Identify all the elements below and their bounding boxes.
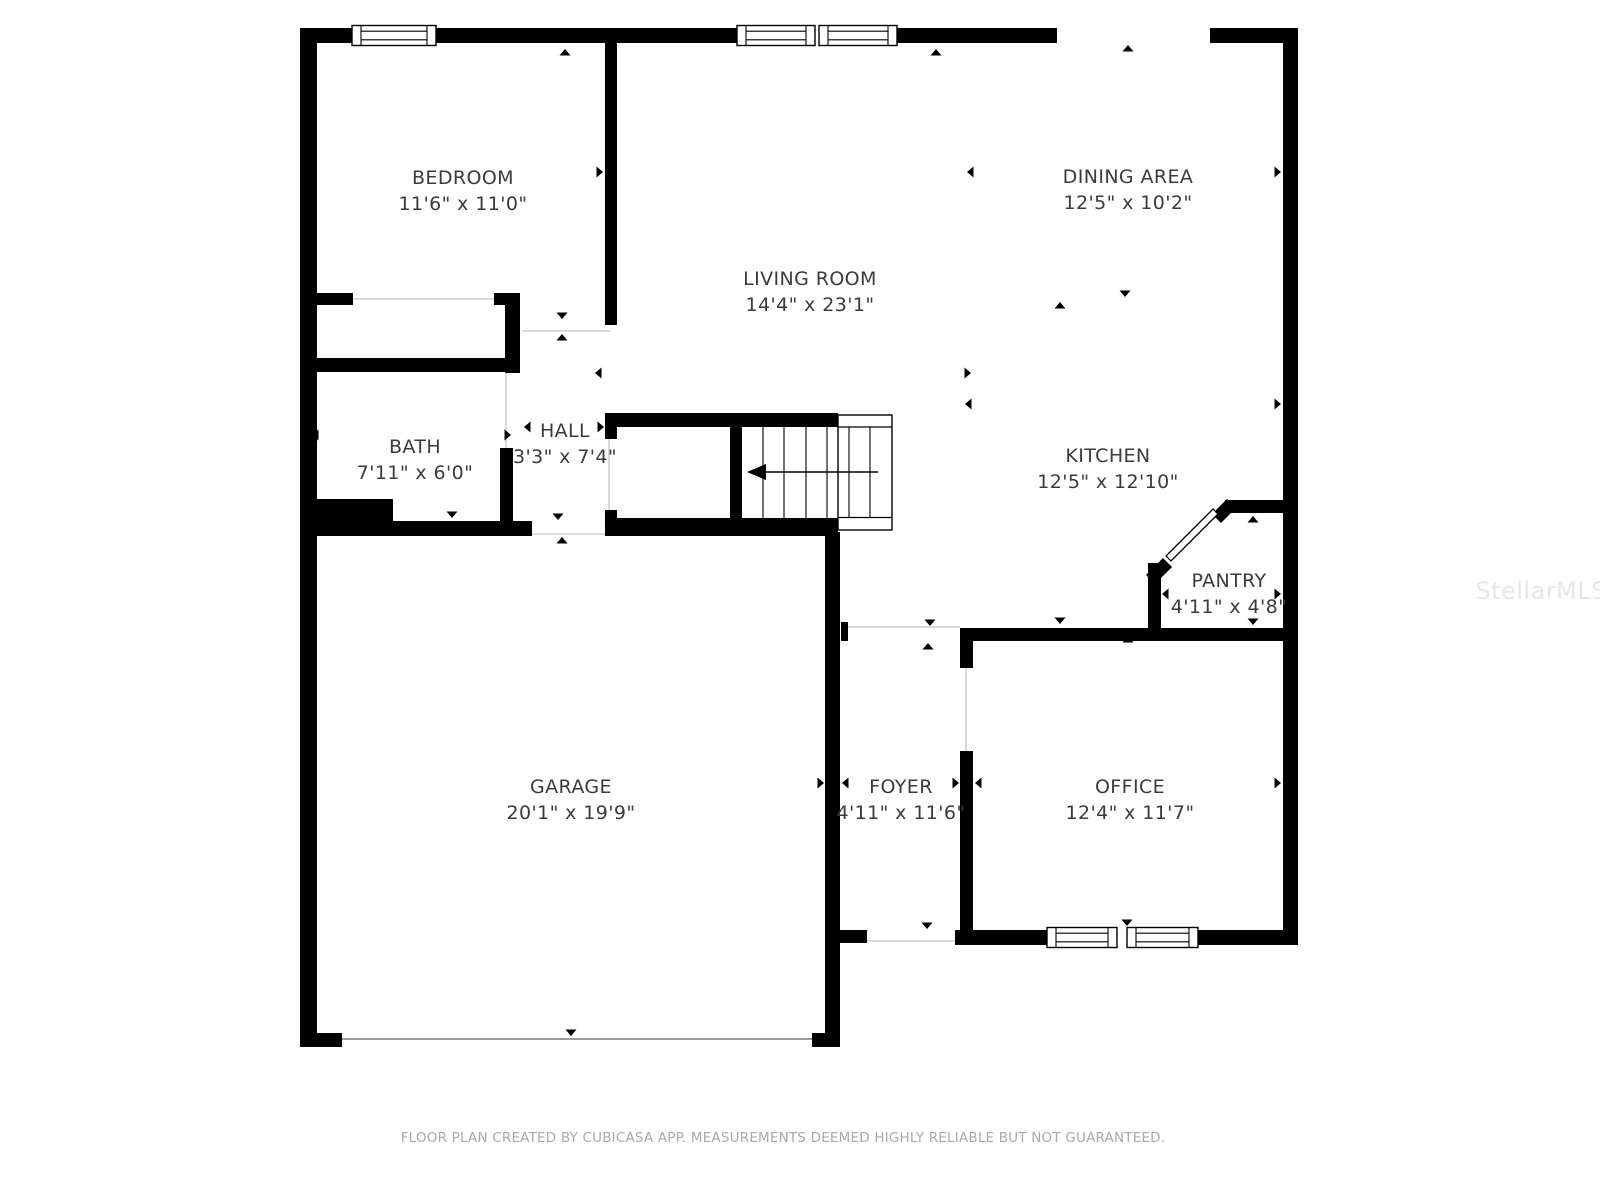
measure-tick-down-icon bbox=[557, 313, 568, 320]
wall-garage-top bbox=[608, 518, 838, 536]
office-window-right bbox=[1127, 928, 1198, 948]
measure-tick-up-icon bbox=[557, 334, 568, 341]
wall-garage-foot-left bbox=[300, 1033, 342, 1047]
wall-top-a bbox=[300, 28, 352, 43]
room-label-garage: GARAGE bbox=[530, 776, 612, 798]
room-label-hall: HALL bbox=[540, 420, 590, 442]
wall-garage-right bbox=[825, 532, 840, 1045]
wall-bedroom-right bbox=[605, 43, 617, 325]
measure-tick-up-icon bbox=[1123, 45, 1134, 52]
wall-foyer-top-stub bbox=[841, 622, 848, 641]
measure-tick-down-icon bbox=[553, 514, 564, 521]
pantry-door-leaf bbox=[1166, 509, 1218, 561]
wall-office-left-upper bbox=[960, 628, 973, 668]
measure-tick-right-icon bbox=[1275, 167, 1282, 178]
watermark: StellarMLS bbox=[1475, 577, 1600, 605]
room-dims-bath: 7'11" x 6'0" bbox=[357, 462, 474, 484]
wall-stair-closet-left-upper bbox=[605, 413, 617, 439]
room-dims-bedroom: 11'6" x 11'0" bbox=[399, 193, 528, 215]
wall-office-left-lower bbox=[960, 751, 973, 945]
room-dims-office: 12'4" x 11'7" bbox=[1066, 802, 1195, 824]
room-label-foyer: FOYER bbox=[869, 776, 933, 798]
floor-plan-page: BEDROOM 11'6" x 11'0" LIVING ROOM 14'4" … bbox=[0, 0, 1600, 1200]
measure-tick-down-icon bbox=[566, 1030, 577, 1037]
measure-tick-down-icon bbox=[1120, 291, 1131, 298]
wall-garage-foot-right bbox=[812, 1033, 840, 1047]
room-dims-living-room: 14'4" x 23'1" bbox=[746, 294, 875, 316]
room-label-living-room: LIVING ROOM bbox=[743, 268, 877, 290]
floor-plan-drawing: BEDROOM 11'6" x 11'0" LIVING ROOM 14'4" … bbox=[0, 0, 1600, 1200]
room-labels: BEDROOM 11'6" x 11'0" LIVING ROOM 14'4" … bbox=[357, 166, 1288, 824]
measure-tick-left-icon bbox=[975, 778, 982, 789]
measure-tick-left-icon bbox=[524, 422, 531, 433]
wall-front-left-stub bbox=[825, 930, 867, 943]
measure-tick-left-icon bbox=[1162, 589, 1169, 600]
measure-tick-right-icon bbox=[953, 778, 960, 789]
room-dims-foyer: 4'11" x 11'6" bbox=[837, 802, 966, 824]
measure-tick-down-icon bbox=[1122, 920, 1133, 927]
wall-bath-bottom bbox=[300, 521, 532, 536]
wall-closet-top-stub bbox=[317, 293, 353, 305]
staircase bbox=[747, 415, 892, 530]
room-dims-garage: 20'1" x 19'9" bbox=[507, 802, 636, 824]
room-label-office: OFFICE bbox=[1095, 776, 1165, 798]
measure-tick-up-icon bbox=[923, 643, 934, 650]
wall-office-bottom-left bbox=[955, 930, 1048, 945]
measure-tick-up-icon bbox=[560, 49, 571, 56]
measure-tick-left-icon bbox=[595, 368, 602, 379]
measure-tick-right-icon bbox=[505, 430, 512, 441]
measure-tick-down-icon bbox=[1055, 618, 1066, 625]
measure-tick-right-icon bbox=[965, 368, 972, 379]
room-label-bath: BATH bbox=[389, 436, 441, 458]
bedroom-window bbox=[352, 26, 436, 46]
room-label-kitchen: KITCHEN bbox=[1065, 445, 1150, 467]
measure-tick-down-icon bbox=[447, 512, 458, 519]
door-thresholds bbox=[342, 299, 966, 1039]
measure-tick-up-icon bbox=[557, 537, 568, 544]
measure-tick-right-icon bbox=[1275, 399, 1282, 410]
wall-bath-block bbox=[317, 499, 393, 522]
wall-top-c bbox=[897, 28, 1057, 43]
measure-tick-right-icon bbox=[597, 167, 604, 178]
measure-tick-down-icon bbox=[922, 923, 933, 930]
wall-stairs-top bbox=[605, 413, 838, 427]
measure-tick-left-icon bbox=[965, 399, 972, 410]
room-label-pantry: PANTRY bbox=[1191, 570, 1266, 592]
measure-tick-right-icon bbox=[818, 778, 825, 789]
wall-stair-closet-right bbox=[730, 413, 742, 532]
wall-left-exterior bbox=[300, 28, 317, 1047]
measure-tick-right-icon bbox=[1275, 778, 1282, 789]
office-window-left bbox=[1047, 928, 1117, 948]
wall-office-bottom-right bbox=[1198, 930, 1298, 945]
room-dims-hall: 3'3" x 7'4" bbox=[513, 446, 617, 468]
room-dims-pantry: 4'11" x 4'8" bbox=[1171, 596, 1288, 618]
room-label-dining-area: DINING AREA bbox=[1063, 166, 1194, 188]
room-label-bedroom: BEDROOM bbox=[412, 167, 514, 189]
measure-tick-up-icon bbox=[1055, 302, 1066, 309]
measure-tick-left-icon bbox=[842, 778, 849, 789]
measure-tick-right-icon bbox=[598, 422, 605, 433]
wall-bath-top bbox=[300, 358, 513, 372]
wall-top-b bbox=[436, 28, 737, 43]
living-room-window-left bbox=[737, 26, 815, 46]
measure-tick-left-icon bbox=[967, 167, 974, 178]
measure-tick-up-icon bbox=[931, 49, 942, 56]
living-room-window-right bbox=[819, 26, 897, 46]
measure-tick-down-icon bbox=[1248, 619, 1259, 626]
room-dims-kitchen: 12'5" x 12'10" bbox=[1037, 471, 1178, 493]
room-dims-dining-area: 12'5" x 10'2" bbox=[1064, 192, 1193, 214]
footer-disclaimer: FLOOR PLAN CREATED BY CUBICASA APP. MEAS… bbox=[401, 1130, 1166, 1146]
wall-kitchen-office bbox=[962, 628, 1283, 641]
measure-tick-up-icon bbox=[1248, 516, 1259, 523]
wall-right-exterior bbox=[1283, 28, 1298, 945]
measure-tick-down-icon bbox=[925, 620, 936, 627]
